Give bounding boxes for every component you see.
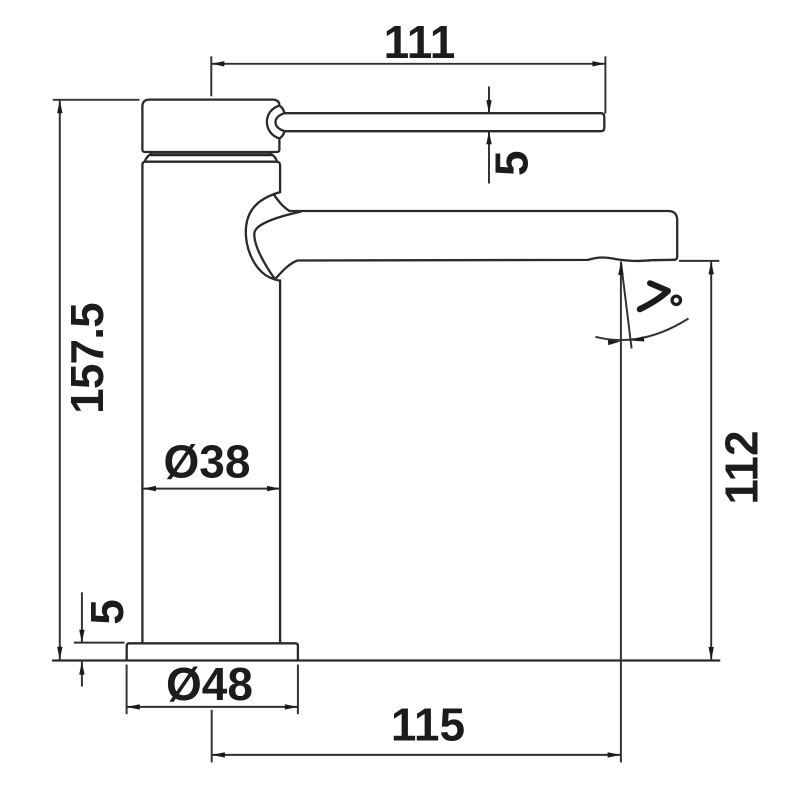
svg-text:111: 111 <box>384 16 456 68</box>
svg-text:157.5: 157.5 <box>61 303 113 414</box>
svg-text:5: 5 <box>81 599 133 625</box>
svg-text:5: 5 <box>486 150 538 176</box>
svg-text:Ø38: Ø38 <box>164 436 251 488</box>
svg-text:Ø48: Ø48 <box>166 658 253 710</box>
svg-text:112: 112 <box>716 430 768 504</box>
svg-text:115: 115 <box>391 699 465 751</box>
